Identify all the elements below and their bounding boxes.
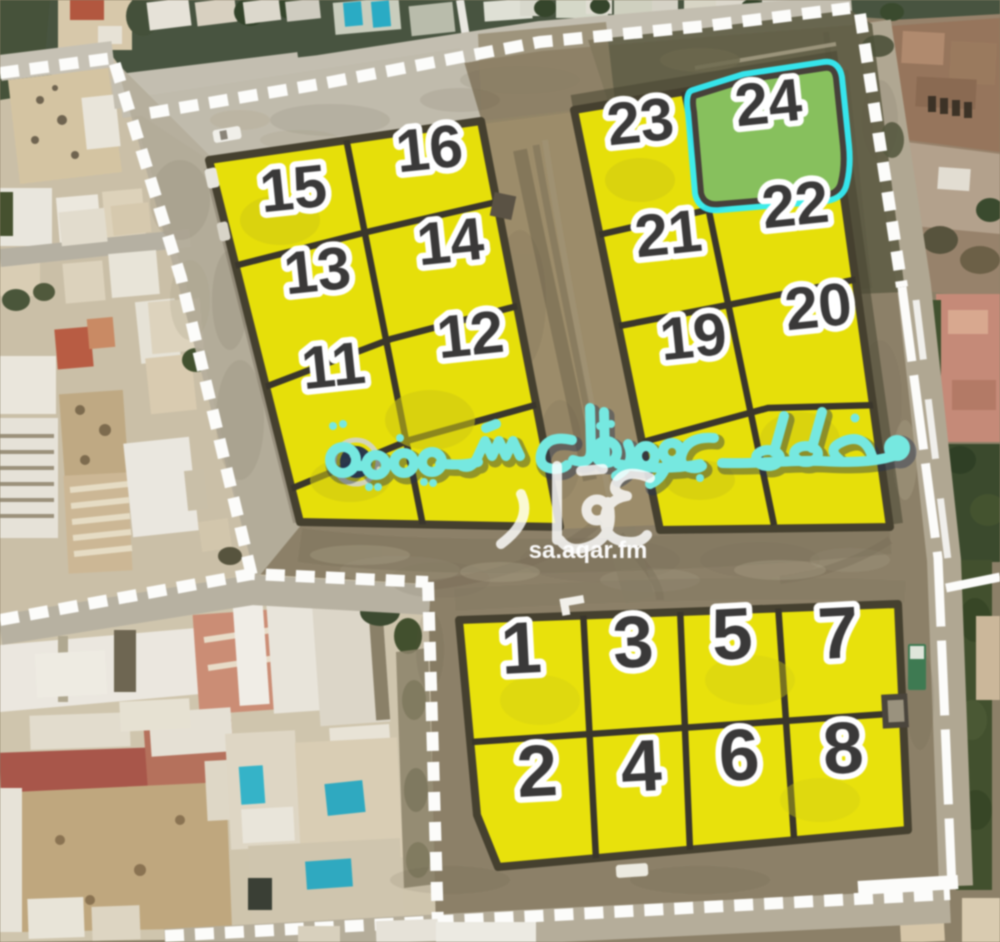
svg-text:sa.aqar.fm: sa.aqar.fm	[529, 537, 648, 564]
svg-text:11: 11	[298, 329, 368, 402]
svg-text:2: 2	[515, 730, 560, 813]
svg-text:4: 4	[619, 725, 664, 808]
svg-text:14: 14	[414, 205, 488, 279]
svg-text:19: 19	[657, 300, 730, 374]
svg-text:5: 5	[710, 593, 755, 676]
svg-text:21: 21	[632, 197, 705, 271]
svg-text:20: 20	[782, 270, 855, 344]
svg-text:13: 13	[281, 234, 354, 308]
svg-text:22: 22	[759, 168, 832, 242]
svg-text:16: 16	[393, 112, 466, 186]
svg-text:7: 7	[816, 592, 861, 675]
svg-text:23: 23	[604, 85, 677, 159]
svg-text:24: 24	[732, 66, 806, 140]
svg-text:12: 12	[434, 298, 507, 372]
svg-text:8: 8	[821, 707, 866, 790]
svg-text:15: 15	[257, 152, 330, 226]
svg-text:6: 6	[717, 714, 762, 797]
svg-text:1: 1	[499, 607, 544, 690]
svg-text:3: 3	[611, 601, 656, 684]
